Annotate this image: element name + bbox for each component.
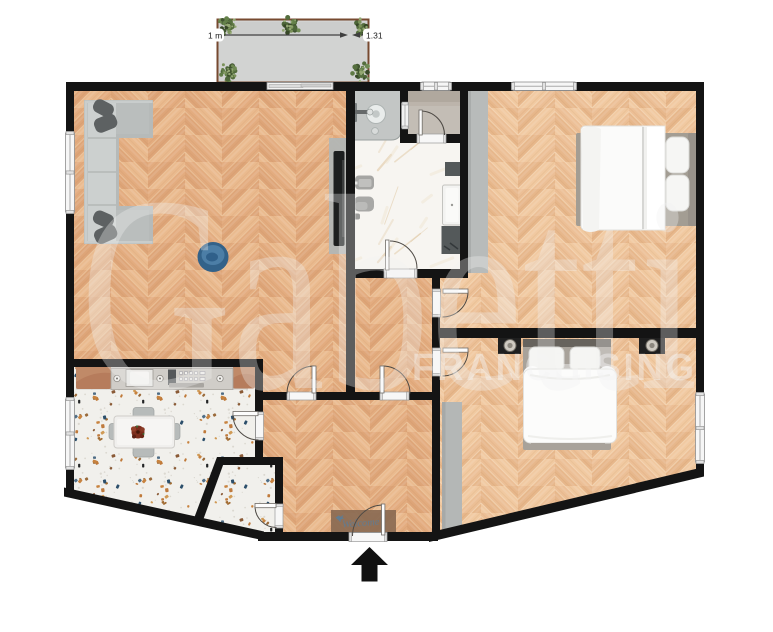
svg-text:FRANCHISING: FRANCHISING: [412, 345, 697, 388]
svg-text:Gabetti: Gabetti: [80, 138, 698, 449]
svg-text:1 m: 1 m: [208, 31, 222, 41]
svg-text:1.31: 1.31: [366, 31, 383, 41]
